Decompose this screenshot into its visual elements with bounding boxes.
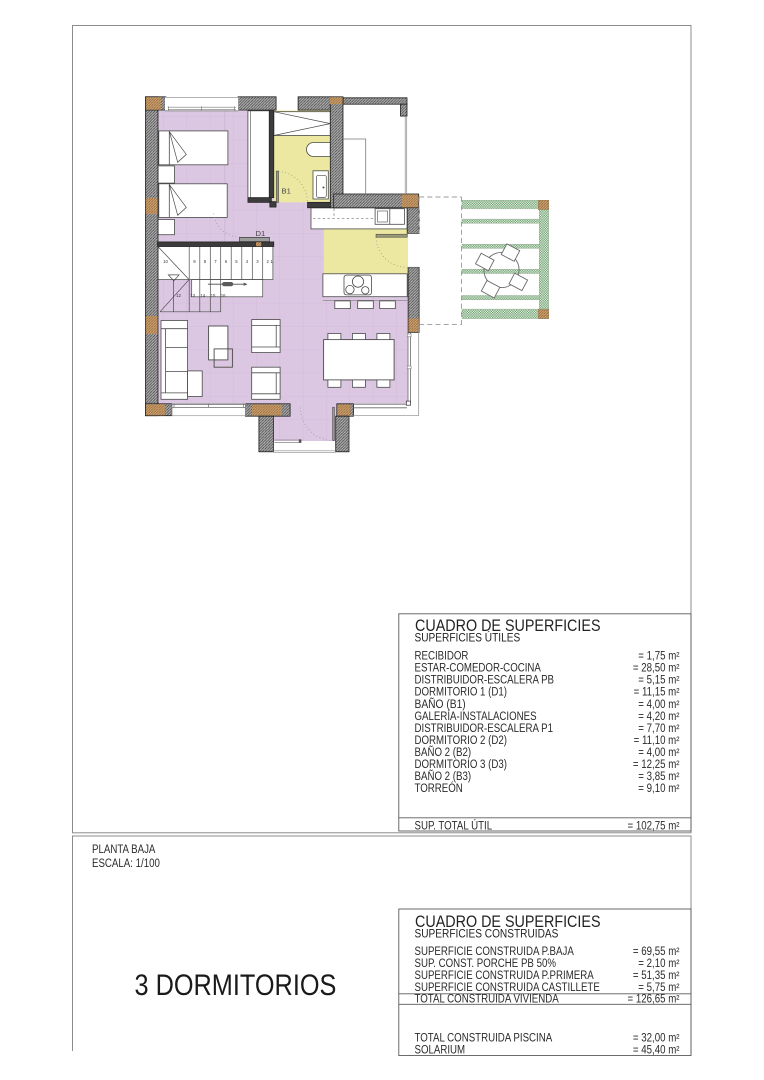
svg-text:= 7,70 m²: = 7,70 m² [638, 723, 679, 735]
svg-text:= 11,15 m²: = 11,15 m² [634, 687, 680, 699]
svg-text:= 32,00 m²: = 32,00 m² [633, 1033, 680, 1045]
svg-text:= 5,75 m²: = 5,75 m² [638, 982, 679, 994]
svg-text:14: 14 [200, 293, 205, 298]
svg-text:RECIBIDOR: RECIBIDOR [415, 651, 469, 663]
svg-text:ESCALA: 1/100: ESCALA: 1/100 [92, 858, 160, 870]
svg-text:= 45,40 m²: = 45,40 m² [633, 1045, 680, 1057]
svg-text:= 51,35 m²: = 51,35 m² [633, 970, 680, 982]
svg-text:= 12,25 m²: = 12,25 m² [633, 759, 680, 771]
svg-text:SUPERFICIE CONSTRUIDA P.PRIMER: SUPERFICIE CONSTRUIDA P.PRIMERA [415, 970, 594, 982]
svg-text:13: 13 [190, 293, 195, 298]
svg-text:DISTRIBUIDOR-ESCALERA P1: DISTRIBUIDOR-ESCALERA P1 [415, 723, 554, 735]
svg-text:TOTAL CONSTRUIDA VIVIENDA: TOTAL CONSTRUIDA VIVIENDA [415, 994, 559, 1006]
svg-text:BAÑO (B1): BAÑO (B1) [415, 698, 466, 711]
svg-text:SUPERFICIES CONSTRUIDAS: SUPERFICIES CONSTRUIDAS [415, 927, 559, 941]
svg-text:SUP. TOTAL ÚTIL: SUP. TOTAL ÚTIL [415, 819, 493, 832]
svg-text:PLANTA BAJA: PLANTA BAJA [92, 844, 156, 856]
svg-text:DORMITORIO 1 (D1): DORMITORIO 1 (D1) [415, 687, 508, 699]
svg-text:DISTRIBUIDOR-ESCALERA PB: DISTRIBUIDOR-ESCALERA PB [415, 675, 555, 687]
svg-text:= 3,85 m²: = 3,85 m² [638, 771, 679, 783]
svg-text:= 4,20 m²: = 4,20 m² [638, 711, 679, 723]
svg-text:16: 16 [221, 293, 226, 298]
svg-text:= 11,10 m²: = 11,10 m² [634, 735, 680, 747]
svg-text:D1: D1 [256, 229, 266, 238]
svg-text:= 4,00 m²: = 4,00 m² [638, 699, 679, 711]
svg-text:= 9,10 m²: = 9,10 m² [638, 783, 679, 795]
svg-text:= 69,55 m²: = 69,55 m² [633, 946, 680, 958]
svg-text:= 5,15 m²: = 5,15 m² [638, 675, 679, 687]
svg-text:10: 10 [163, 259, 168, 264]
svg-text:= 2,10 m²: = 2,10 m² [638, 958, 679, 970]
svg-text:BAÑO 2 (B2): BAÑO 2 (B2) [415, 746, 472, 759]
svg-text:SUPERFICIE CONSTRUIDA P.BAJA: SUPERFICIE CONSTRUIDA P.BAJA [415, 946, 575, 958]
svg-text:SUPERFICIES ÚTILES: SUPERFICIES ÚTILES [415, 630, 521, 645]
svg-text:= 102,75 m²: = 102,75 m² [628, 820, 680, 832]
svg-text:12: 12 [176, 293, 181, 298]
svg-text:= 1,75 m²: = 1,75 m² [638, 651, 679, 663]
svg-text:SOLARIUM: SOLARIUM [415, 1045, 466, 1057]
svg-text:TOTAL CONSTRUIDA PISCINA: TOTAL CONSTRUIDA PISCINA [415, 1033, 553, 1045]
svg-text:SUPERFICIE CONSTRUIDA CASTILLE: SUPERFICIE CONSTRUIDA CASTILLETE [415, 982, 601, 994]
svg-text:B1: B1 [282, 187, 291, 196]
svg-text:SUP. CONST. PORCHE PB 50%: SUP. CONST. PORCHE PB 50% [415, 958, 557, 970]
svg-text:3 DORMITORIOS: 3 DORMITORIOS [135, 969, 337, 1002]
svg-text:DORMITORIO 2 (D2): DORMITORIO 2 (D2) [415, 735, 508, 747]
svg-text:= 4,00 m²: = 4,00 m² [638, 747, 679, 759]
svg-text:DORMITORIO 3 (D3): DORMITORIO 3 (D3) [415, 759, 508, 771]
svg-text:= 126,65 m²: = 126,65 m² [628, 994, 680, 1006]
svg-text:= 28,50 m²: = 28,50 m² [633, 663, 680, 675]
svg-text:GALERÍA-INSTALACIONES: GALERÍA-INSTALACIONES [415, 710, 537, 723]
svg-text:ESTAR-COMEDOR-COCINA: ESTAR-COMEDOR-COCINA [415, 663, 542, 675]
svg-text:TORREÓN: TORREÓN [415, 782, 463, 795]
svg-text:BAÑO 2 (B3): BAÑO 2 (B3) [415, 770, 472, 783]
svg-text:15: 15 [211, 293, 216, 298]
